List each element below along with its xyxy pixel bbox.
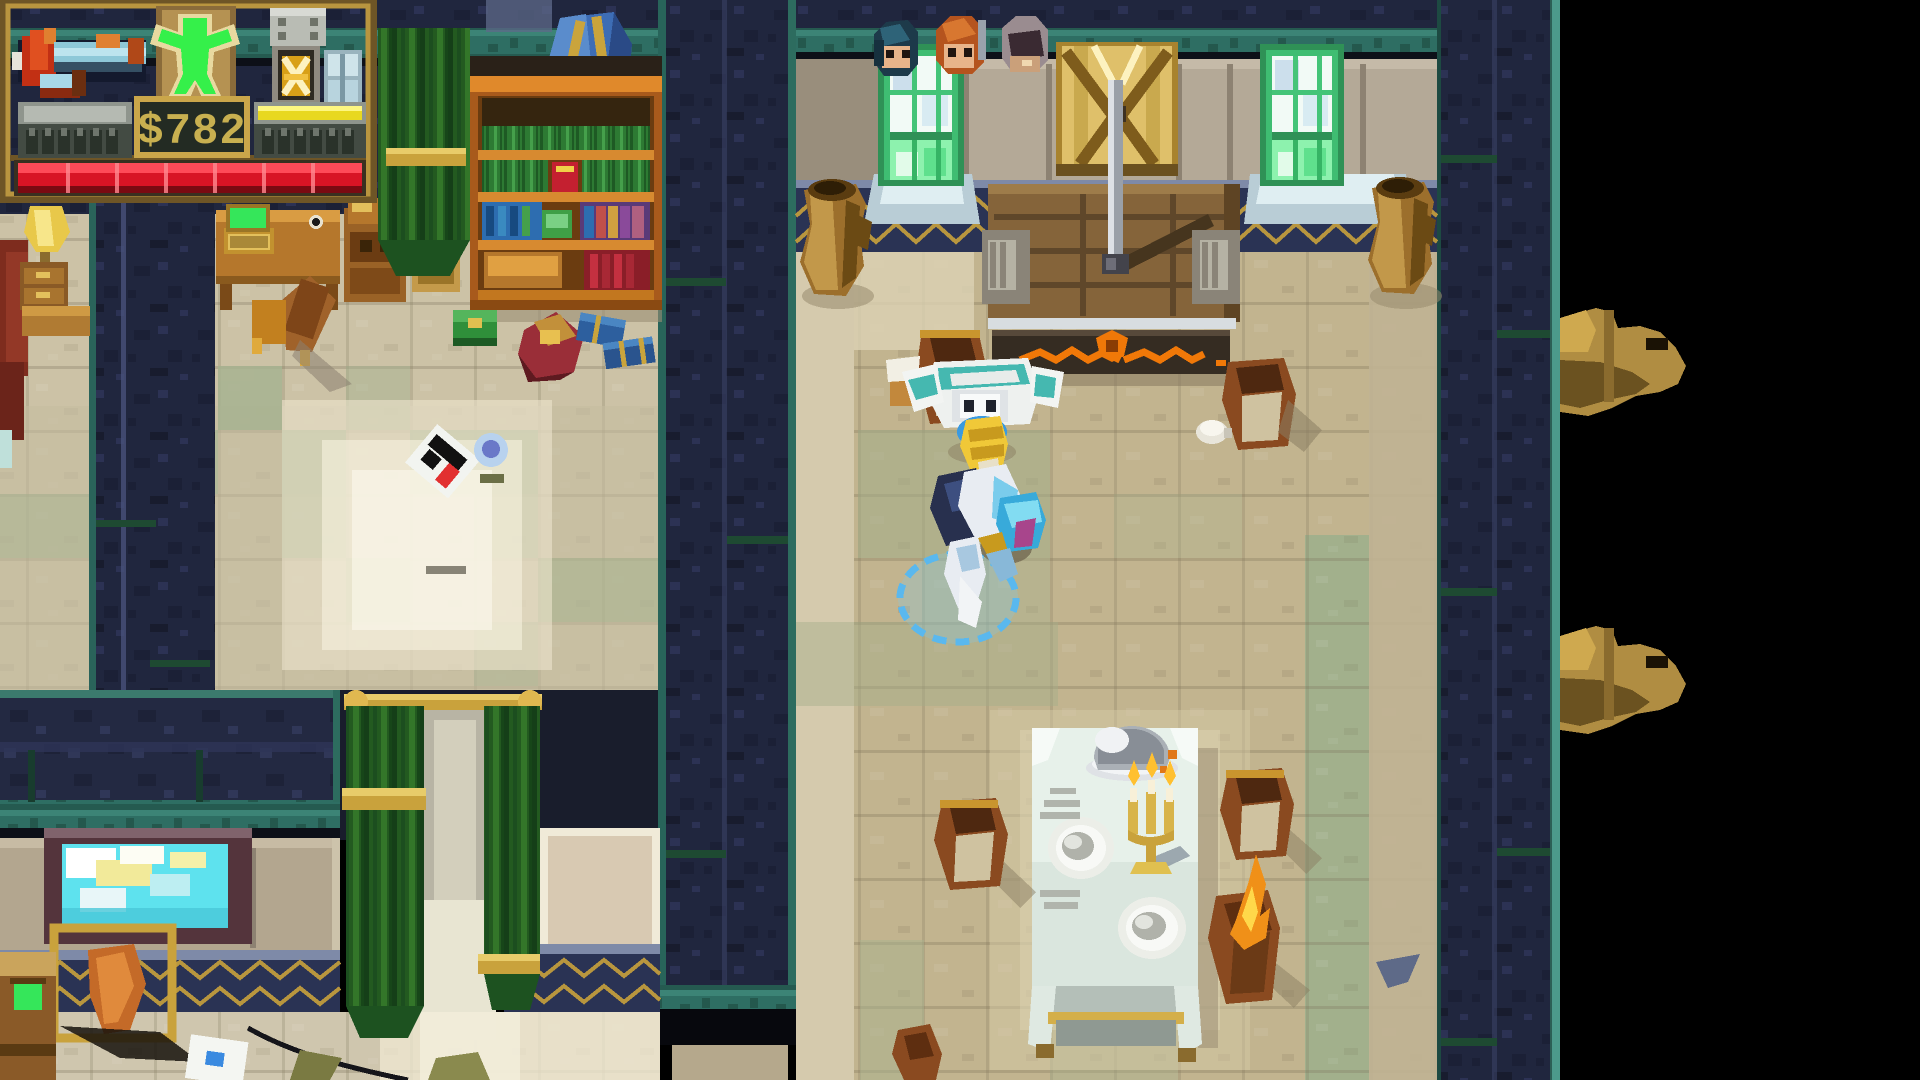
- svg-text:$782: $782: [137, 107, 247, 157]
